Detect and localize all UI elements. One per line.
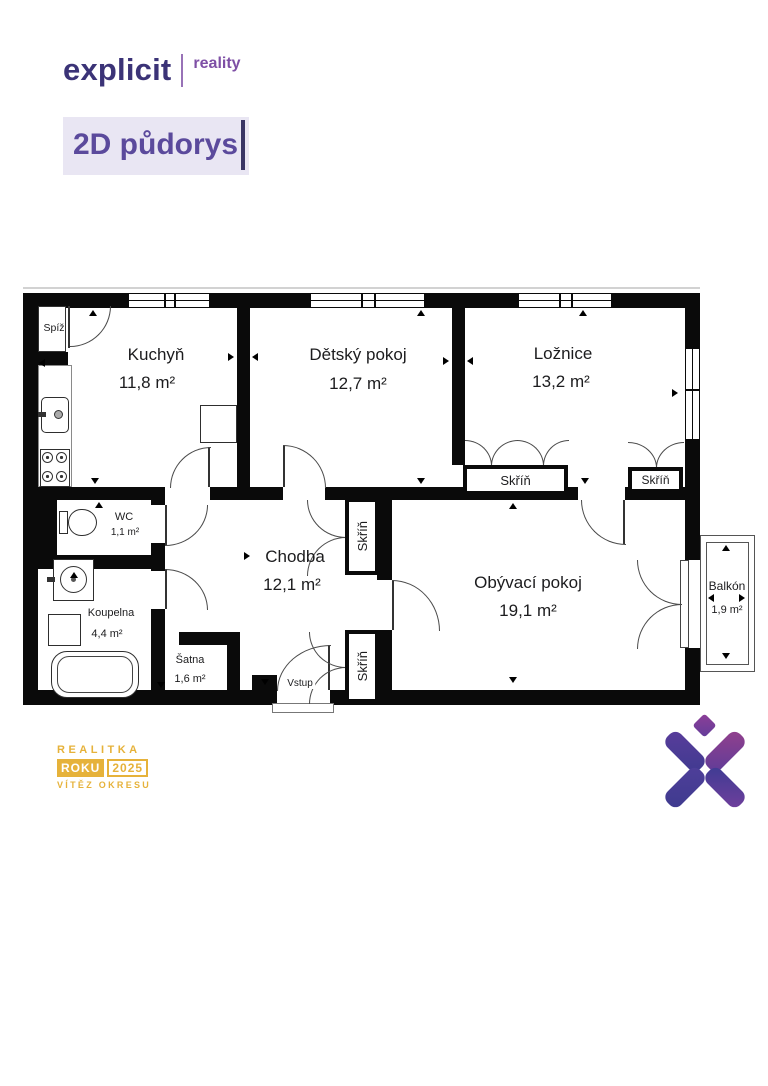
door-swing-arc xyxy=(656,442,684,468)
toilet-tank xyxy=(59,511,68,534)
wall xyxy=(38,487,57,555)
direction-arrow-icon xyxy=(443,357,449,365)
door-opening xyxy=(377,580,392,630)
door-swing-arc xyxy=(465,440,492,466)
closet-label: Skříň xyxy=(355,521,370,551)
door-opening xyxy=(283,487,325,500)
award-badge-line2: ROKU 2025 xyxy=(57,759,151,777)
x-mark-bar xyxy=(702,729,748,775)
window-mullion xyxy=(361,294,363,307)
door-swing-arc xyxy=(517,440,544,466)
company-logo: explicit reality xyxy=(63,54,241,87)
door-opening xyxy=(165,487,210,500)
direction-arrow-icon xyxy=(739,594,745,602)
window xyxy=(685,348,700,440)
direction-arrow-icon xyxy=(509,503,517,509)
window-mullion xyxy=(519,300,611,301)
award-badge-line1: REALITKA xyxy=(57,744,151,756)
award-badge: REALITKA ROKU 2025 VÍTĚZ OKRESU xyxy=(57,744,151,790)
stove-burner-icon xyxy=(42,471,53,482)
window-mullion xyxy=(374,294,376,307)
door-swing-arc xyxy=(491,440,518,466)
direction-arrow-icon xyxy=(244,552,250,560)
sink-faucet-icon xyxy=(54,410,63,419)
direction-arrow-icon xyxy=(417,478,425,484)
brand-x-mark-icon xyxy=(660,716,752,812)
room-label-spiz: Spíž xyxy=(43,323,64,334)
entrance-label: Vstup xyxy=(285,679,315,689)
wall xyxy=(179,632,240,645)
award-badge-line3: VÍTĚZ OKRESU xyxy=(57,780,151,790)
door-swing-arc xyxy=(165,569,208,610)
closet-bedroom-left: Skříň xyxy=(463,465,568,495)
direction-arrow-icon xyxy=(252,353,258,361)
room-label-wc: WC xyxy=(115,512,133,523)
stove-burner-icon xyxy=(42,452,53,463)
door-swing-arc xyxy=(628,442,657,468)
room-label-satna: Šatna xyxy=(176,655,205,666)
door-opening xyxy=(578,487,625,500)
window xyxy=(518,293,612,308)
door-swing-arc xyxy=(307,500,346,538)
window-mullion xyxy=(311,300,424,301)
room-area-koupelna: 4,4 m² xyxy=(91,629,122,640)
closet-hall-lower: Skříň xyxy=(345,630,379,703)
kitchen-cabinet xyxy=(200,405,237,443)
sink-tap-handle-icon xyxy=(47,577,55,582)
direction-arrow-icon xyxy=(722,545,730,551)
direction-arrow-icon xyxy=(509,677,517,683)
direction-arrow-icon xyxy=(722,653,730,659)
room-label-chodba: Chodba xyxy=(265,548,325,565)
room-area-satna: 1,6 m² xyxy=(174,674,205,685)
window-mullion xyxy=(571,294,573,307)
door-swing-arc xyxy=(165,505,208,546)
page-title: 2D půdorys xyxy=(63,117,249,175)
door-opening xyxy=(151,505,165,543)
award-badge-word: ROKU xyxy=(57,759,104,777)
direction-arrow-icon xyxy=(89,310,97,316)
room-area-wc: 1,1 m² xyxy=(111,528,139,538)
direction-arrow-icon xyxy=(672,389,678,397)
wall xyxy=(227,645,240,690)
room-area-loznice: 13,2 m² xyxy=(532,373,590,390)
entrance-threshold xyxy=(272,703,334,713)
room-label-kuchyn: Kuchyň xyxy=(128,346,185,363)
page-title-text: 2D půdorys xyxy=(73,130,238,160)
door-swing-arc xyxy=(637,560,682,605)
window-mullion xyxy=(686,389,699,391)
logo-wordmark: explicit xyxy=(63,54,171,85)
window xyxy=(310,293,425,308)
wall xyxy=(237,308,250,487)
door-swing-arc xyxy=(637,604,682,649)
room-label-detsky-pokoj: Dětský pokoj xyxy=(309,346,406,363)
direction-arrow-icon xyxy=(261,679,269,685)
award-badge-year: 2025 xyxy=(107,759,148,777)
room-area-obyvaci-pokoj: 19,1 m² xyxy=(499,602,557,619)
direction-arrow-icon xyxy=(95,502,103,508)
x-mark-bar xyxy=(662,765,708,811)
direction-arrow-icon xyxy=(708,594,714,602)
room-area-detsky-pokoj: 12,7 m² xyxy=(329,375,387,392)
text-cursor-icon xyxy=(241,120,245,170)
x-mark-bar xyxy=(702,765,748,811)
direction-arrow-icon xyxy=(579,310,587,316)
room-label-koupelna: Koupelna xyxy=(88,608,135,619)
room-area-chodba: 12,1 m² xyxy=(263,576,321,593)
closet-bedroom-right: Skříň xyxy=(628,467,683,493)
window-mullion xyxy=(692,349,693,439)
logo-divider xyxy=(181,54,183,87)
window-mullion xyxy=(559,294,561,307)
x-mark-diamond xyxy=(692,713,716,737)
direction-arrow-icon xyxy=(70,572,78,578)
stove-burner-icon xyxy=(56,452,67,463)
room-area-balkon: 1,9 m² xyxy=(711,605,742,616)
direction-arrow-icon xyxy=(581,478,589,484)
door-swing-arc xyxy=(283,445,326,488)
floorplan: Skříň Skříň Skříň Skříň xyxy=(23,293,700,705)
door-swing-arc xyxy=(543,440,569,466)
closet-label: Skříň xyxy=(500,473,530,488)
toilet-bowl xyxy=(68,509,97,536)
door-opening xyxy=(151,571,165,609)
room-area-kuchyn: 11,8 m² xyxy=(119,374,175,391)
wall xyxy=(452,308,465,465)
window-mullion xyxy=(164,294,166,307)
direction-arrow-icon xyxy=(157,682,165,688)
direction-arrow-icon xyxy=(417,310,425,316)
window-mullion xyxy=(174,294,176,307)
bathtub-inner xyxy=(57,656,133,693)
direction-arrow-icon xyxy=(91,478,99,484)
room-label-loznice: Ložnice xyxy=(534,345,593,362)
window-mullion xyxy=(129,300,209,301)
direction-arrow-icon xyxy=(228,353,234,361)
closet-label: Skříň xyxy=(355,651,370,681)
logo-tagline: reality xyxy=(193,55,240,73)
door-swing-arc xyxy=(170,447,211,488)
facade-line xyxy=(23,287,700,289)
closet-label: Skříň xyxy=(641,473,669,487)
room-label-obyvaci-pokoj: Obývací pokoj xyxy=(474,574,582,591)
sink-tap-handle-icon xyxy=(38,412,46,417)
direction-arrow-icon xyxy=(467,357,473,365)
washing-machine xyxy=(48,614,81,646)
room-label-balkon: Balkón xyxy=(709,580,746,592)
window xyxy=(128,293,210,308)
stove-burner-icon xyxy=(56,471,67,482)
x-mark-bar xyxy=(662,729,708,775)
door-swing-arc xyxy=(581,500,626,545)
door-swing-arc xyxy=(392,580,440,631)
closet-hall-upper: Skříň xyxy=(345,498,379,575)
direction-arrow-icon xyxy=(39,359,45,367)
